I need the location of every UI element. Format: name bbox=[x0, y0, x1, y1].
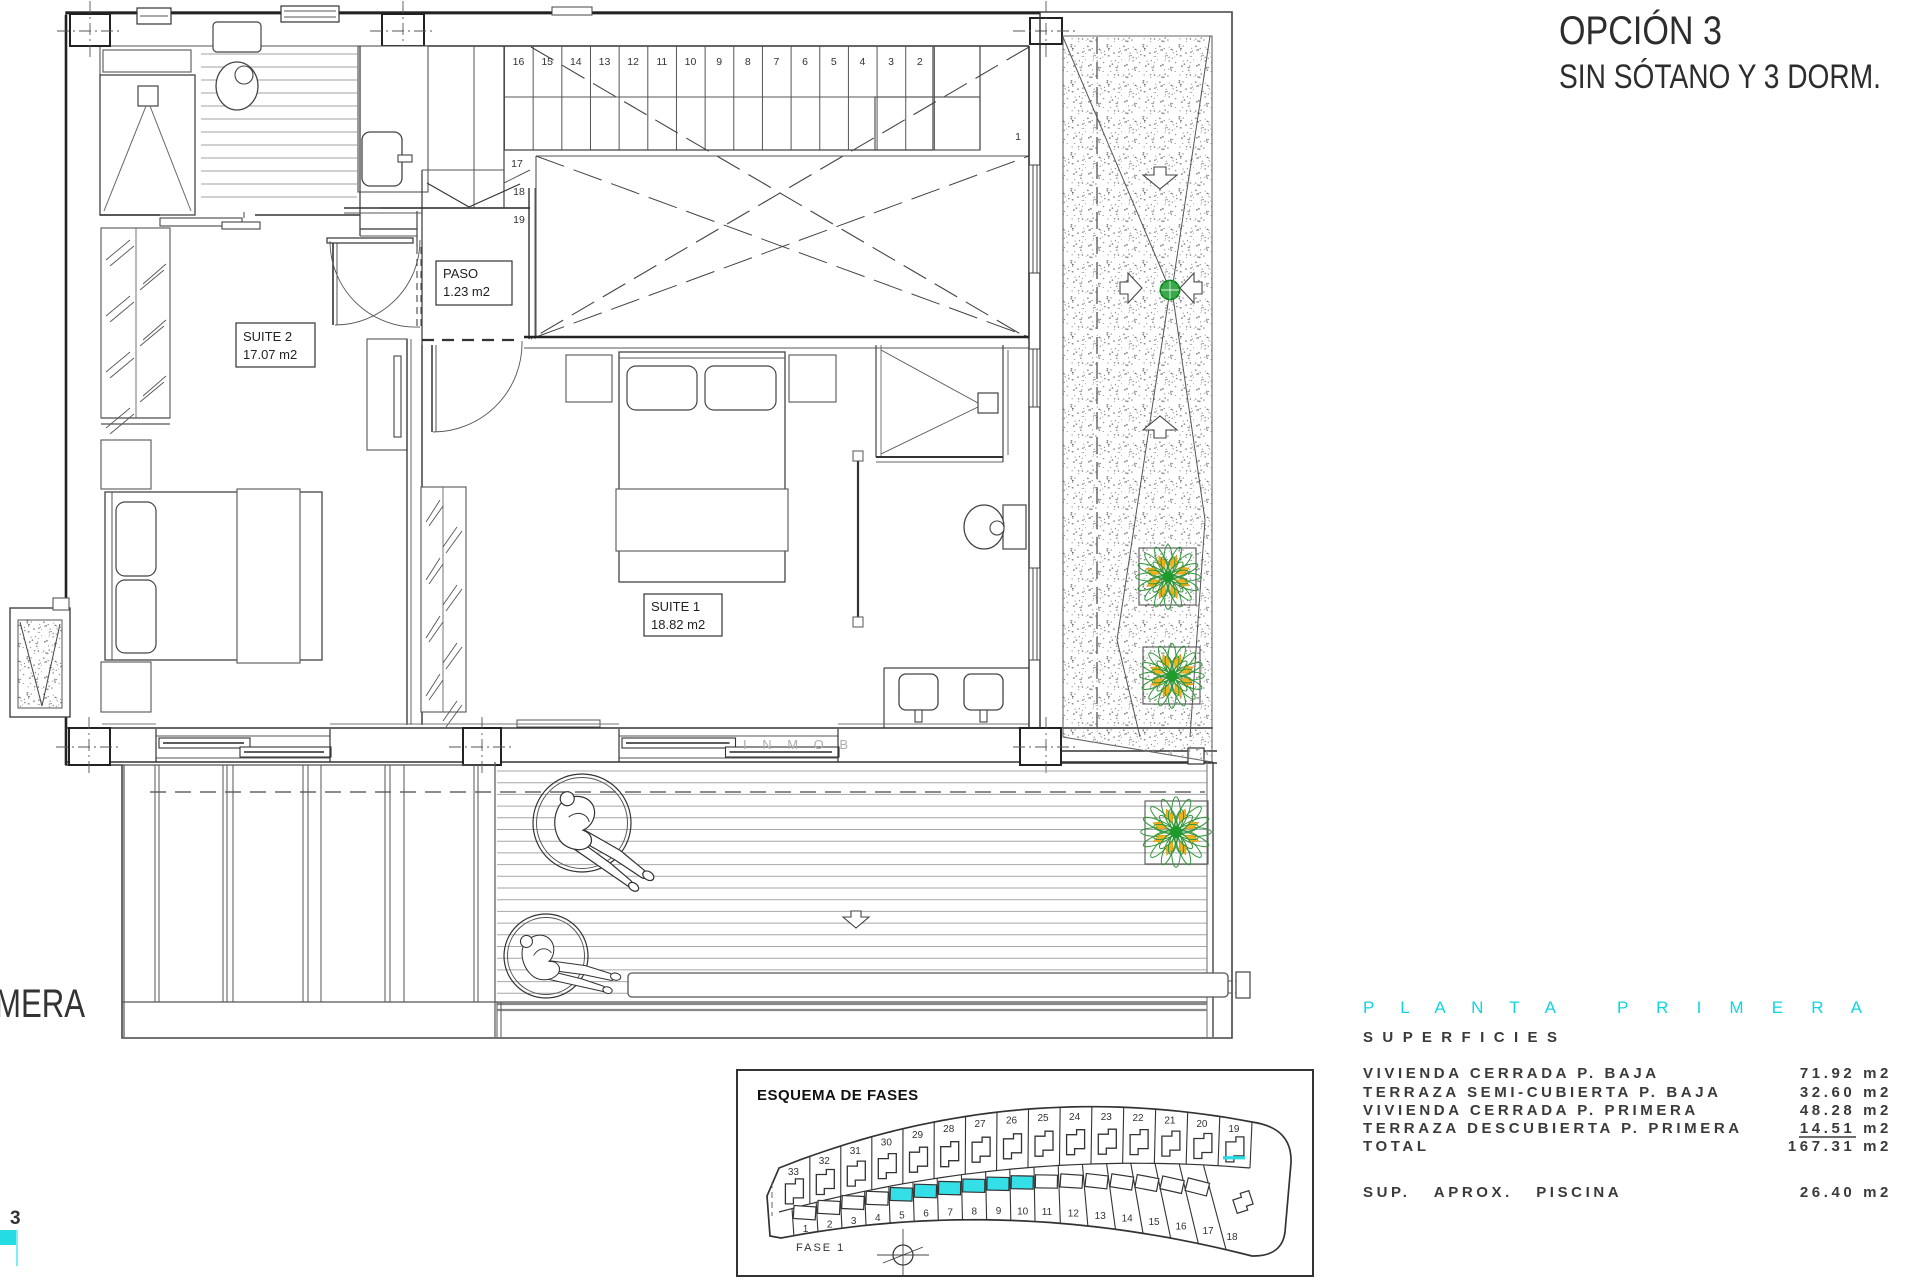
svg-text:3: 3 bbox=[888, 56, 894, 68]
svg-text:48.28 m2: 48.28 m2 bbox=[1800, 1102, 1892, 1119]
svg-text:5: 5 bbox=[831, 56, 837, 68]
svg-text:P R I M E R A: P R I M E R A bbox=[1617, 998, 1863, 1017]
svg-text:11: 11 bbox=[1042, 1207, 1053, 1218]
svg-text:MERA: MERA bbox=[0, 982, 85, 1026]
svg-text:2: 2 bbox=[827, 1220, 833, 1231]
svg-text:7: 7 bbox=[774, 56, 780, 68]
svg-text:14: 14 bbox=[1122, 1214, 1134, 1225]
svg-text:8: 8 bbox=[745, 56, 751, 68]
svg-text:26: 26 bbox=[1006, 1116, 1018, 1127]
svg-text:11: 11 bbox=[656, 56, 667, 68]
svg-text:13: 13 bbox=[599, 56, 611, 68]
svg-text:28: 28 bbox=[943, 1124, 955, 1135]
svg-text:16: 16 bbox=[513, 56, 525, 68]
svg-text:12: 12 bbox=[1068, 1209, 1080, 1220]
svg-text:9: 9 bbox=[996, 1206, 1002, 1217]
svg-text:16: 16 bbox=[1175, 1221, 1187, 1232]
svg-text:SUITE 1: SUITE 1 bbox=[651, 599, 700, 614]
svg-text:71.92 m2: 71.92 m2 bbox=[1800, 1065, 1892, 1082]
svg-text:SUITE 2: SUITE 2 bbox=[243, 329, 292, 344]
svg-text:4: 4 bbox=[859, 56, 865, 68]
svg-text:TERRAZA SEMI-CUBIERTA P. BAJA: TERRAZA SEMI-CUBIERTA P. BAJA bbox=[1363, 1084, 1722, 1101]
svg-text:TOTAL: TOTAL bbox=[1363, 1138, 1430, 1155]
svg-text:19: 19 bbox=[1228, 1124, 1240, 1135]
svg-text:33: 33 bbox=[788, 1167, 800, 1178]
svg-text:17: 17 bbox=[1202, 1226, 1214, 1237]
svg-text:9: 9 bbox=[716, 56, 722, 68]
svg-text:TERRAZA DESCUBIERTA P. PRIMERA: TERRAZA DESCUBIERTA P. PRIMERA bbox=[1363, 1120, 1743, 1137]
svg-text:VIVIENDA CERRADA P. BAJA: VIVIENDA CERRADA P. BAJA bbox=[1363, 1065, 1660, 1082]
svg-text:I N M O B: I N M O B bbox=[743, 737, 854, 752]
svg-text:6: 6 bbox=[923, 1209, 929, 1220]
svg-text:30: 30 bbox=[881, 1138, 893, 1149]
svg-text:1: 1 bbox=[803, 1224, 809, 1235]
svg-text:12: 12 bbox=[627, 56, 639, 68]
svg-text:15: 15 bbox=[541, 56, 553, 68]
svg-text:OPCIÓN 3: OPCIÓN 3 bbox=[1559, 8, 1722, 53]
svg-text:14: 14 bbox=[570, 56, 582, 68]
svg-text:5: 5 bbox=[899, 1211, 905, 1222]
svg-text:SUP. APROX. PISCINA: SUP. APROX. PISCINA bbox=[1363, 1184, 1622, 1201]
svg-text:25: 25 bbox=[1037, 1113, 1049, 1124]
svg-text:P L A N T A: P L A N T A bbox=[1363, 998, 1557, 1017]
svg-text:SIN SÓTANO Y 3 DORM.: SIN SÓTANO Y 3 DORM. bbox=[1559, 58, 1881, 96]
svg-text:7: 7 bbox=[947, 1207, 953, 1218]
svg-text:10: 10 bbox=[685, 56, 697, 68]
svg-text:32: 32 bbox=[819, 1156, 831, 1167]
svg-text:1.23 m2: 1.23 m2 bbox=[443, 284, 490, 299]
svg-text:167.31 m2: 167.31 m2 bbox=[1788, 1138, 1892, 1155]
svg-text:FASE 1: FASE 1 bbox=[796, 1242, 845, 1254]
svg-text:1: 1 bbox=[1015, 131, 1021, 143]
svg-text:32.60 m2: 32.60 m2 bbox=[1800, 1084, 1892, 1101]
svg-text:3: 3 bbox=[10, 1208, 21, 1229]
svg-text:ESQUEMA DE FASES: ESQUEMA DE FASES bbox=[757, 1087, 919, 1104]
svg-text:29: 29 bbox=[912, 1130, 924, 1141]
svg-text:27: 27 bbox=[975, 1119, 987, 1130]
svg-text:PASO: PASO bbox=[443, 266, 478, 281]
svg-text:17.07 m2: 17.07 m2 bbox=[243, 347, 297, 362]
svg-text:15: 15 bbox=[1149, 1217, 1161, 1228]
svg-text:10: 10 bbox=[1017, 1206, 1029, 1217]
svg-text:14.51 m2: 14.51 m2 bbox=[1800, 1120, 1892, 1137]
svg-text:2: 2 bbox=[917, 56, 923, 68]
svg-text:19: 19 bbox=[513, 214, 525, 226]
svg-text:4: 4 bbox=[875, 1213, 881, 1224]
svg-text:18.82 m2: 18.82 m2 bbox=[651, 617, 705, 632]
svg-text:18: 18 bbox=[513, 186, 525, 198]
svg-text:23: 23 bbox=[1101, 1112, 1113, 1123]
svg-text:17: 17 bbox=[511, 158, 523, 170]
svg-text:S U P E R F I C I E S: S U P E R F I C I E S bbox=[1363, 1029, 1557, 1046]
svg-text:VIVIENDA CERRADA P. PRIMERA: VIVIENDA CERRADA P. PRIMERA bbox=[1363, 1102, 1699, 1119]
svg-text:21: 21 bbox=[1164, 1116, 1176, 1127]
svg-text:6: 6 bbox=[802, 56, 808, 68]
svg-text:22: 22 bbox=[1133, 1113, 1145, 1124]
svg-text:13: 13 bbox=[1095, 1211, 1107, 1222]
svg-text:8: 8 bbox=[972, 1206, 978, 1217]
svg-text:20: 20 bbox=[1196, 1119, 1208, 1130]
svg-text:3: 3 bbox=[851, 1216, 857, 1227]
svg-text:26.40 m2: 26.40 m2 bbox=[1800, 1184, 1892, 1201]
svg-text:31: 31 bbox=[850, 1146, 862, 1157]
svg-text:24: 24 bbox=[1069, 1112, 1081, 1123]
svg-text:18: 18 bbox=[1226, 1232, 1238, 1243]
